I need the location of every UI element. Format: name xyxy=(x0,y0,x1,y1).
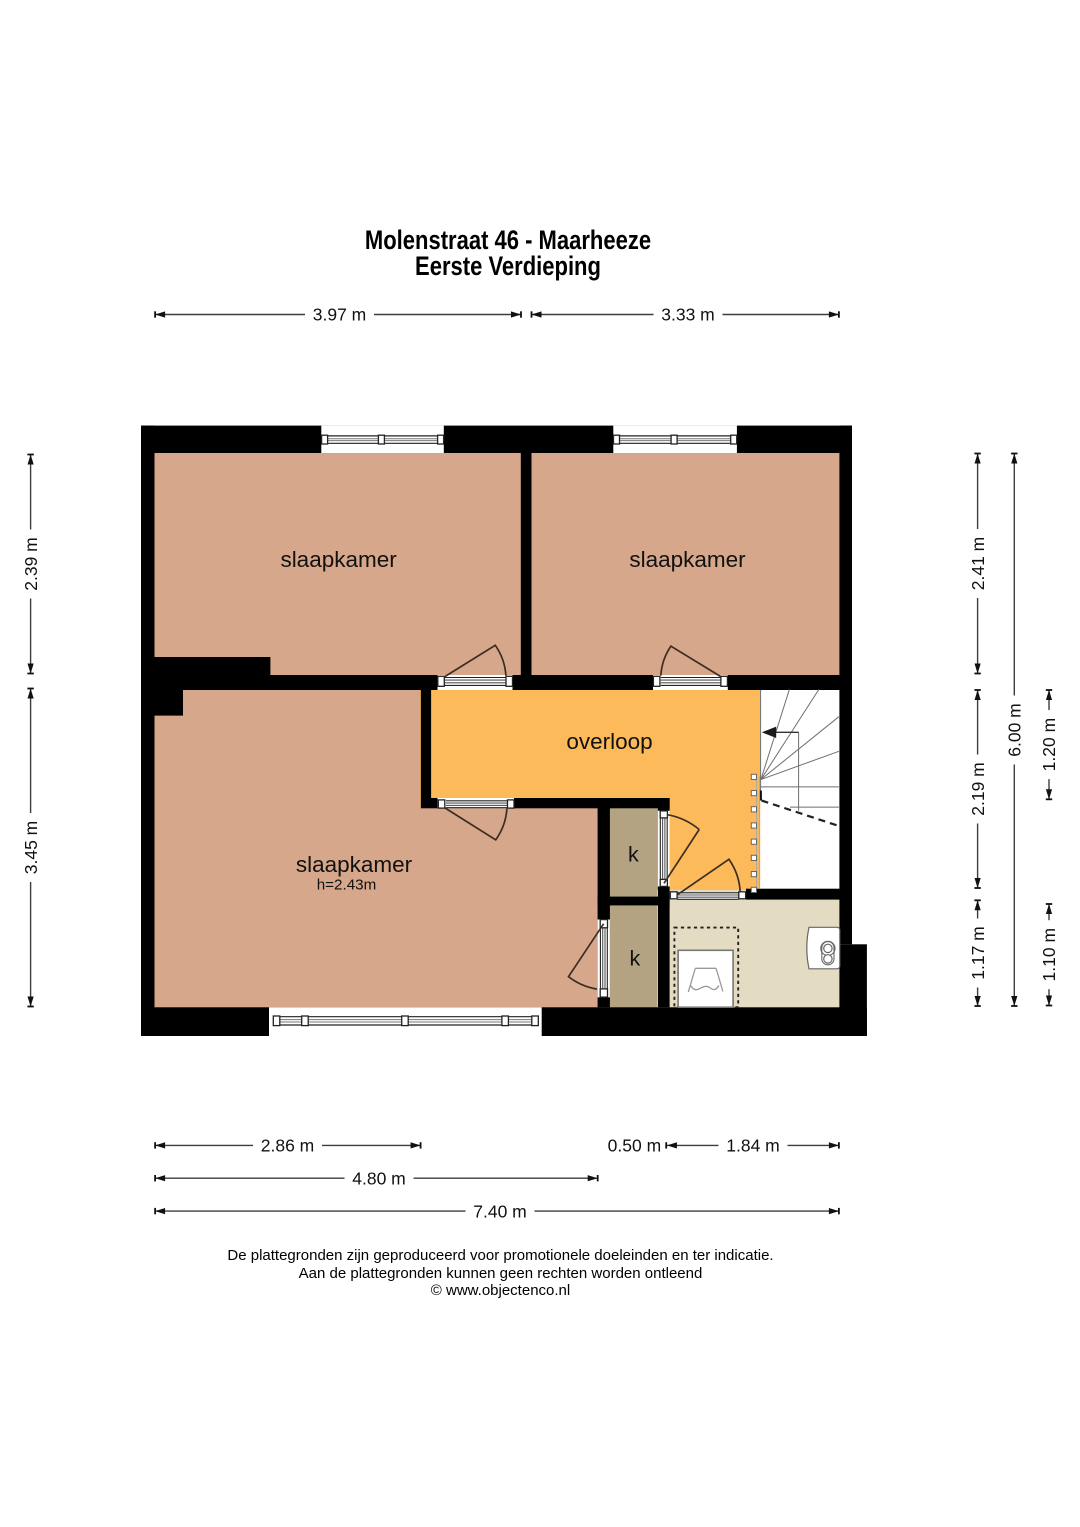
svg-text:2.86 m: 2.86 m xyxy=(261,1136,315,1156)
svg-text:1.10 m: 1.10 m xyxy=(1039,928,1059,982)
svg-text:slaapkamer: slaapkamer xyxy=(280,547,397,572)
svg-text:1.17 m: 1.17 m xyxy=(968,926,988,980)
svg-text:6.00 m: 6.00 m xyxy=(1005,703,1025,757)
svg-text:overloop: overloop xyxy=(566,729,652,754)
svg-text:h=2.43m: h=2.43m xyxy=(317,877,377,894)
svg-text:2.41 m: 2.41 m xyxy=(968,537,988,591)
svg-text:k: k xyxy=(628,843,639,867)
svg-text:7.40 m: 7.40 m xyxy=(473,1201,527,1221)
svg-text:k: k xyxy=(630,947,641,971)
svg-text:slaapkamer: slaapkamer xyxy=(629,547,746,572)
svg-text:2.19 m: 2.19 m xyxy=(968,762,988,816)
svg-text:1.20 m: 1.20 m xyxy=(1039,718,1059,772)
svg-text:3.33 m: 3.33 m xyxy=(661,305,715,325)
svg-text:4.80 m: 4.80 m xyxy=(352,1168,406,1188)
svg-text:0.50 m: 0.50 m xyxy=(608,1136,662,1156)
svg-text:1.84 m: 1.84 m xyxy=(726,1136,780,1156)
svg-text:3.45 m: 3.45 m xyxy=(21,821,41,875)
svg-text:3.97 m: 3.97 m xyxy=(313,305,367,325)
svg-text:2.39 m: 2.39 m xyxy=(21,537,41,591)
svg-text:slaapkamer: slaapkamer xyxy=(296,852,413,877)
